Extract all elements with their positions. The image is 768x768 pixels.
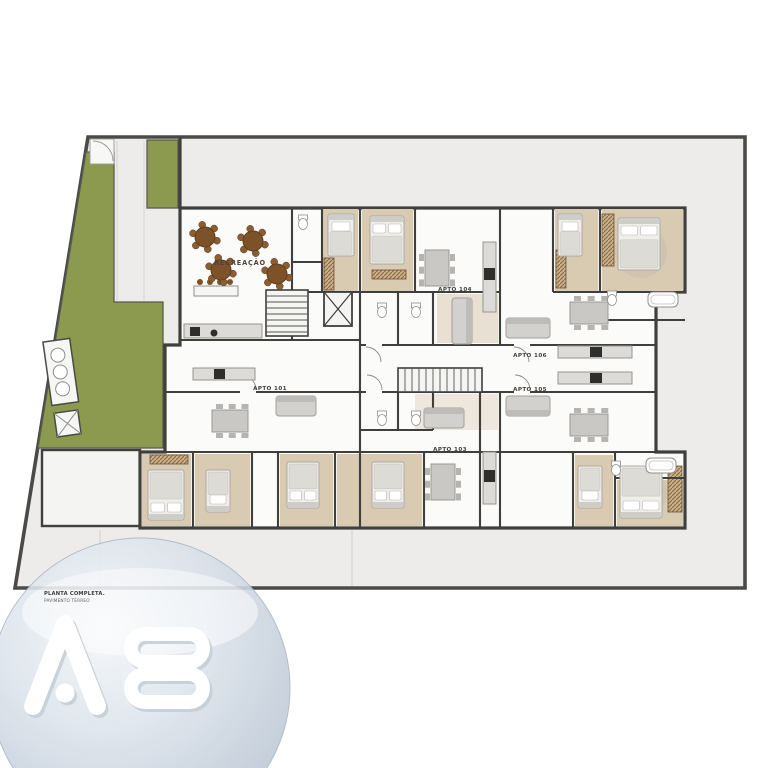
plan-title: PLANTA COMPLETA. — [44, 591, 105, 598]
upper-stairs — [266, 290, 308, 336]
apto-104-label: APTO 104 — [438, 287, 472, 293]
apto-103-label: APTO 103 — [433, 447, 467, 453]
apto-105-label: APTO 105 — [513, 387, 547, 393]
plan-subtitle: PAVIMENTO TÉRREO — [44, 598, 105, 604]
elevator — [324, 292, 352, 326]
title-block: PLANTA COMPLETA. PAVIMENTO TÉRREO — [44, 591, 105, 604]
private-patio — [42, 450, 140, 526]
entry-gate — [90, 139, 114, 164]
ab-logo-watermark — [0, 530, 330, 768]
floor-plan-page: A8 RECREAÇÃO APTO 101 APTO 103 APTO 104 … — [0, 0, 768, 768]
apto-106-label: APTO 106 — [513, 353, 547, 359]
corridor-stairs — [398, 368, 482, 392]
apto-101-label: APTO 101 — [253, 386, 287, 392]
recreation-label: RECREAÇÃO — [214, 259, 266, 267]
